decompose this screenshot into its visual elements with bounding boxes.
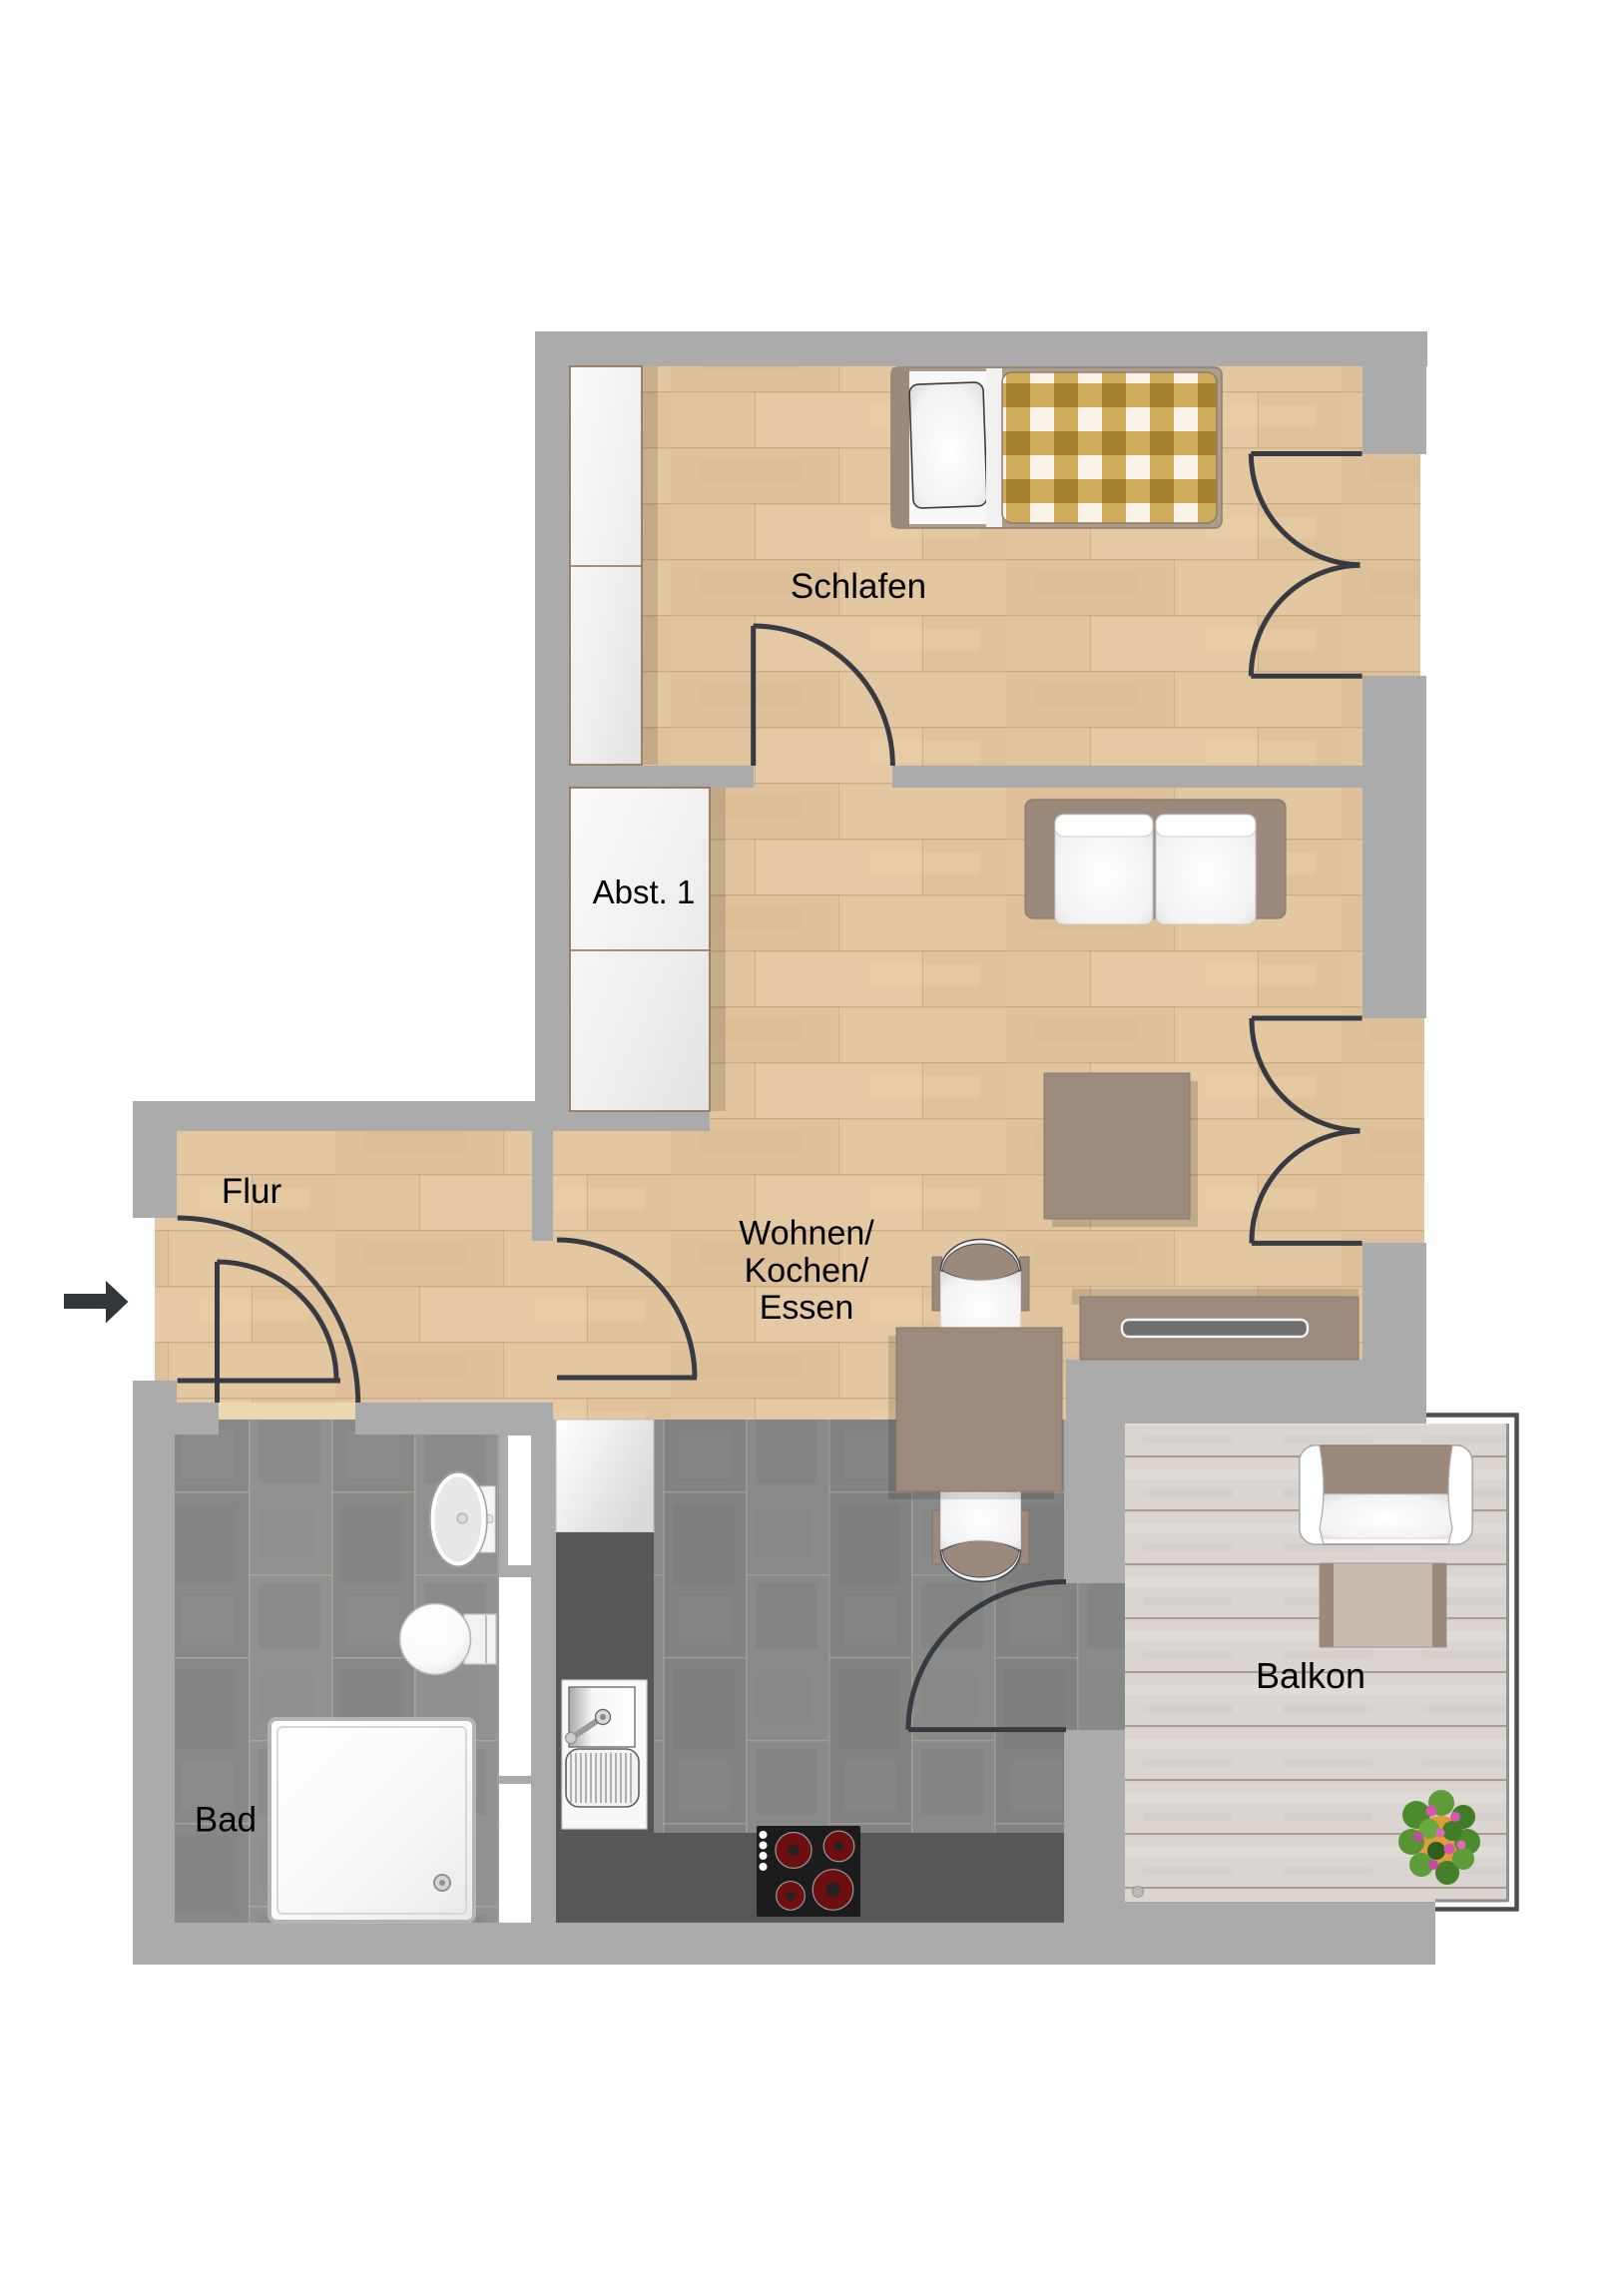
svg-text:Kochen/: Kochen/ <box>745 1252 869 1290</box>
svg-text:Balkon: Balkon <box>1256 1655 1365 1696</box>
svg-text:Essen: Essen <box>760 1289 854 1327</box>
svg-text:Bad: Bad <box>195 1801 257 1840</box>
svg-text:Abst. 1: Abst. 1 <box>593 873 696 910</box>
svg-text:Wohnen/: Wohnen/ <box>739 1215 874 1253</box>
svg-text:Schlafen: Schlafen <box>791 567 926 606</box>
svg-text:Flur: Flur <box>222 1172 282 1211</box>
